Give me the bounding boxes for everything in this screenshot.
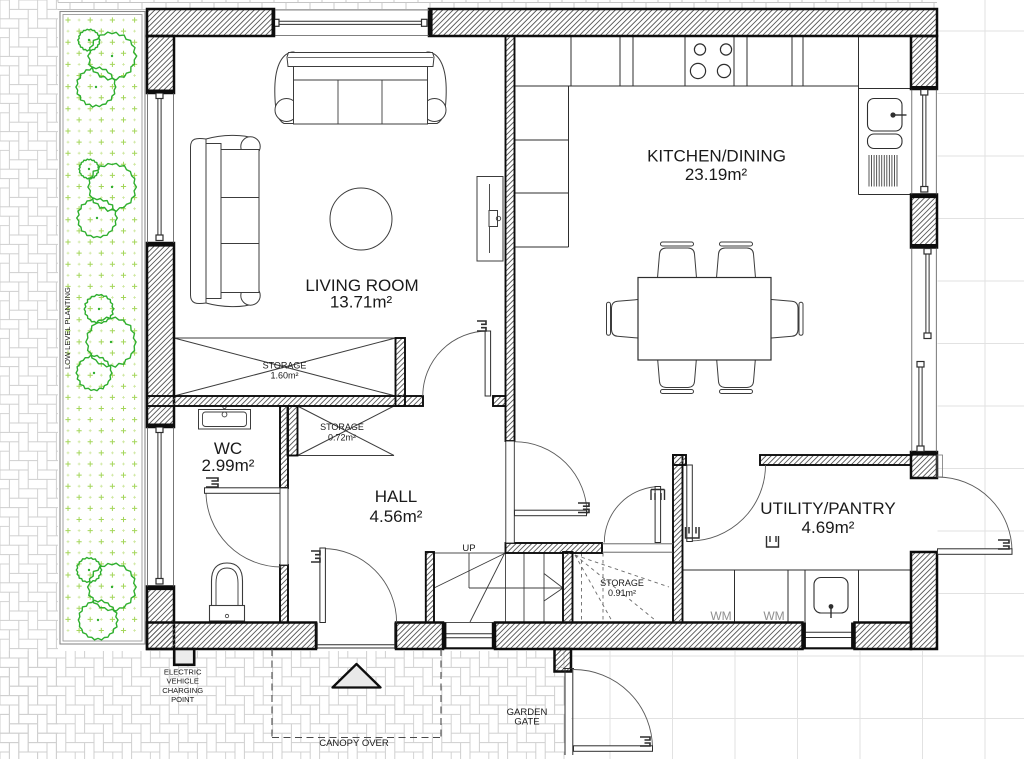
svg-text:HALL: HALL (375, 487, 418, 506)
svg-text:WM: WM (710, 609, 731, 623)
svg-text:1.60m²: 1.60m² (270, 371, 298, 381)
svg-text:STORAGE: STORAGE (320, 422, 364, 432)
svg-text:CANOPY OVER: CANOPY OVER (319, 738, 389, 749)
svg-text:0.91m²: 0.91m² (608, 588, 636, 598)
svg-text:POINT: POINT (171, 695, 195, 704)
svg-text:UTILITY/PANTRY: UTILITY/PANTRY (760, 499, 895, 518)
svg-text:CHARGING: CHARGING (162, 686, 203, 695)
svg-text:23.19m²: 23.19m² (685, 165, 748, 184)
svg-text:UP: UP (462, 543, 475, 554)
svg-text:LOW LEVEL PLANTING: LOW LEVEL PLANTING (63, 287, 72, 369)
svg-text:VEHICLE: VEHICLE (166, 677, 199, 686)
svg-text:WM: WM (763, 609, 784, 623)
svg-text:0.72m²: 0.72m² (328, 433, 356, 443)
svg-text:13.71m²: 13.71m² (330, 293, 393, 312)
svg-text:ELECTRIC: ELECTRIC (164, 668, 202, 677)
svg-text:STORAGE: STORAGE (263, 361, 307, 371)
svg-text:GATE: GATE (514, 717, 539, 728)
svg-text:STORAGE: STORAGE (600, 578, 644, 588)
svg-text:4.69m²: 4.69m² (802, 518, 855, 537)
svg-text:2.99m²: 2.99m² (202, 456, 255, 475)
svg-text:KITCHEN/DINING: KITCHEN/DINING (647, 147, 786, 166)
svg-text:4.56m²: 4.56m² (370, 507, 423, 526)
